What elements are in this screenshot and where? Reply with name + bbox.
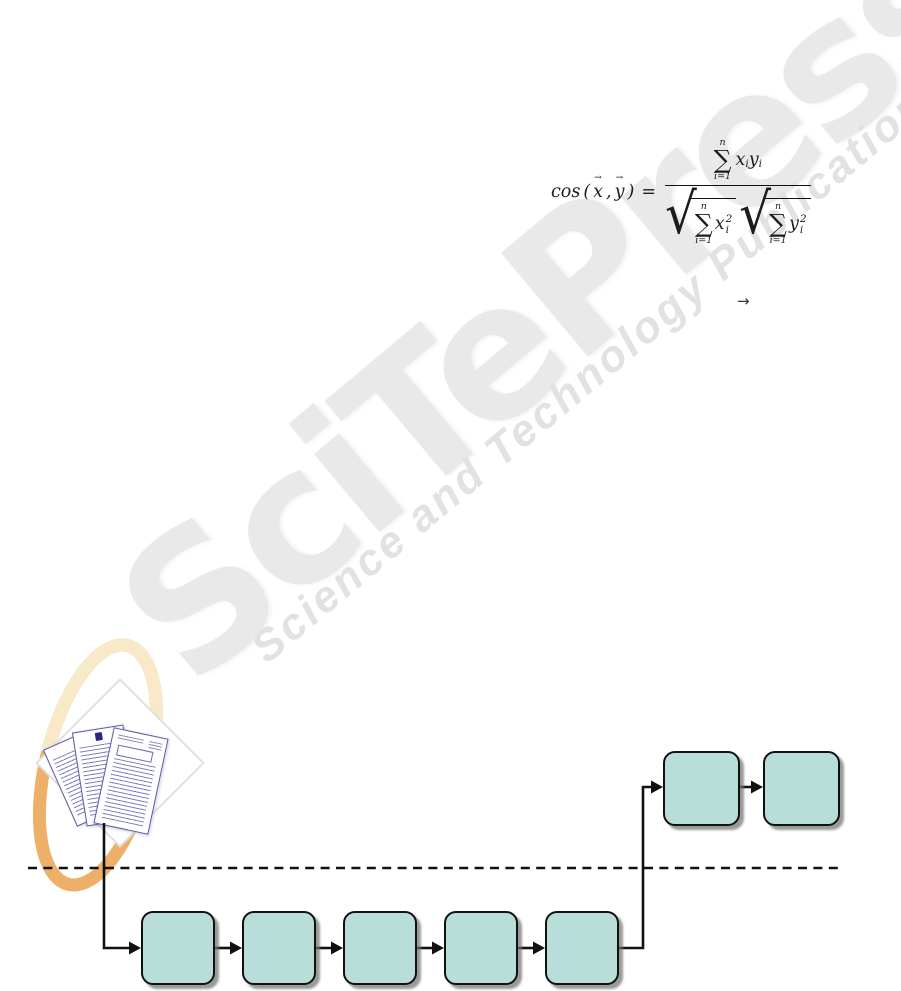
term-y-subscript: i (759, 159, 762, 170)
process-box-bottom-3 (343, 911, 417, 985)
equals-sign: = (641, 182, 656, 202)
formula-open-paren: ( (583, 182, 590, 202)
sum-lower-limit: i=1 (695, 236, 712, 246)
vector-x-letter: x (593, 182, 603, 202)
paper-page: SciTePress Science and Technology Public… (0, 0, 901, 991)
process-box-bottom-5 (545, 911, 619, 985)
term-x: x (735, 152, 745, 170)
sum-lower-limit: i=1 (770, 236, 787, 246)
summation-den-y: n ∑ i=1 (769, 202, 787, 247)
sigma-icon: ∑ (714, 148, 732, 172)
radical-y: √ n ∑ i=1 y 2 i (739, 189, 810, 247)
term-y: y (749, 152, 759, 170)
document-text-lines (102, 758, 156, 826)
vector-arrow-icon: → (594, 173, 602, 183)
numerator-term: xiyi (735, 152, 761, 170)
den-x-term: x 2 i (715, 214, 733, 233)
summation-numerator: n ∑ i=1 (714, 138, 732, 183)
small-right-arrow-icon: → (737, 292, 750, 310)
radical-x: √ n ∑ i=1 x 2 i (665, 189, 736, 247)
den-y-supsub: 2 i (800, 214, 807, 236)
den-y-term: y 2 i (789, 214, 807, 233)
cosine-similarity-formula: cos(→x, →y) = n ∑ i=1 xiyi √ (551, 138, 811, 246)
formula-comma: , (606, 182, 612, 202)
den-y-base: y (789, 216, 799, 234)
sigma-icon: ∑ (769, 212, 787, 236)
arrowhead-into-step3 (331, 942, 343, 955)
scitepress-watermark-text: SciTePress (90, 0, 901, 712)
fraction-numerator: n ∑ i=1 xiyi (708, 138, 768, 184)
radical-sign-icon: √ (665, 186, 697, 242)
formula-function-name: cos (551, 182, 580, 202)
arrowhead-into-step4 (432, 942, 444, 955)
vector-y: →y (615, 182, 625, 202)
vector-x: →x (593, 182, 603, 202)
arrowhead-into-top-step2 (751, 781, 763, 794)
process-box-bottom-4 (444, 911, 518, 985)
process-box-top-1 (663, 751, 740, 826)
process-box-top-2 (763, 751, 840, 826)
vector-arrow-icon: → (616, 173, 624, 183)
document-header-left (117, 734, 144, 745)
den-y-subscript: i (800, 225, 803, 236)
process-box-bottom-2 (242, 911, 316, 985)
radical-sign-icon: √ (739, 186, 771, 242)
summation-den-x: n ∑ i=1 (695, 202, 713, 247)
formula-close-paren: ) (628, 182, 635, 202)
den-x-subscript: i (726, 225, 729, 236)
document-crest-icon (95, 732, 103, 741)
arrowhead-into-step1 (129, 942, 141, 955)
sigma-icon: ∑ (695, 212, 713, 236)
connector-step5-to-top-row (619, 787, 651, 948)
arrowhead-into-step2 (230, 942, 242, 955)
den-x-base: x (715, 216, 725, 234)
arrowhead-into-top-step1 (651, 781, 663, 794)
vector-y-letter: y (615, 182, 625, 202)
document-header-right (148, 741, 162, 752)
sum-lower-limit: i=1 (714, 172, 731, 182)
formula-fraction: n ∑ i=1 xiyi √ n ∑ i=1 (665, 138, 811, 246)
process-box-bottom-1 (141, 911, 215, 985)
arrowhead-into-step5 (533, 942, 545, 955)
den-x-supsub: 2 i (726, 214, 733, 236)
fraction-denominator: √ n ∑ i=1 x 2 i (665, 188, 811, 247)
